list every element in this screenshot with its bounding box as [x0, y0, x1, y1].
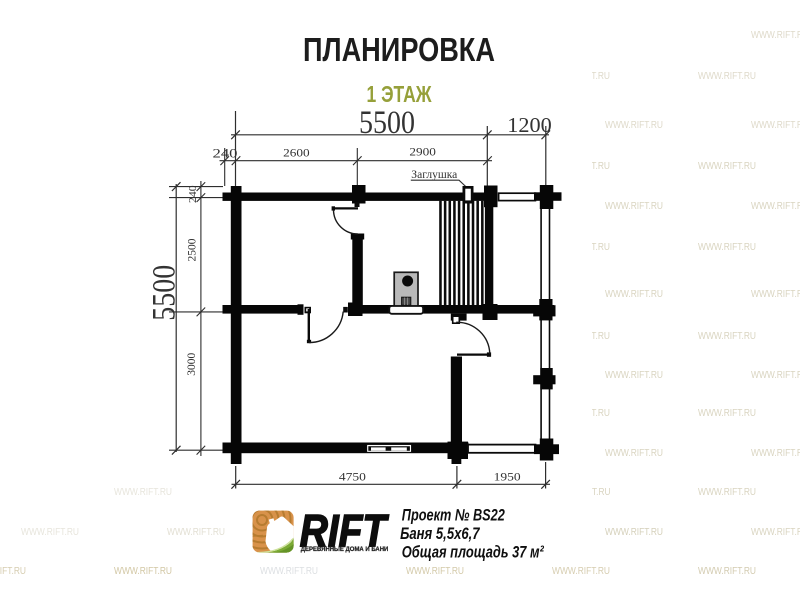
svg-text:WWW.RIFT.RU: WWW.RIFT.RU: [605, 447, 663, 459]
svg-text:1 ЭТАЖ: 1 ЭТАЖ: [367, 81, 433, 107]
svg-text:ДЕРЕВЯННЫЕ ДОМА И БАНИ: ДЕРЕВЯННЫЕ ДОМА И БАНИ: [301, 546, 389, 553]
svg-text:1200: 1200: [507, 113, 552, 137]
svg-text:WWW.RIFT.RU: WWW.RIFT.RU: [605, 369, 663, 381]
svg-text:T.RU: T.RU: [592, 486, 611, 498]
svg-text:WWW.RIFT.RU: WWW.RIFT.RU: [698, 160, 756, 172]
svg-text:2900: 2900: [409, 145, 436, 159]
svg-text:240: 240: [187, 185, 199, 203]
svg-text:WWW.RIFT.RU: WWW.RIFT.RU: [751, 288, 800, 300]
svg-text:WWW.RIFT.RU: WWW.RIFT.RU: [698, 241, 756, 253]
svg-text:WWW.RIFT.RU: WWW.RIFT.RU: [605, 288, 663, 300]
svg-text:2600: 2600: [283, 146, 310, 160]
svg-text:ПЛАНИРОВКА: ПЛАНИРОВКА: [303, 32, 495, 69]
svg-text:WWW.RIFT.RU: WWW.RIFT.RU: [114, 486, 172, 498]
svg-text:Проект № BS22: Проект № BS22: [402, 506, 505, 524]
svg-text:Общая площадь 37 м²: Общая площадь 37 м²: [402, 544, 544, 562]
svg-text:Баня 5,5х6,7: Баня 5,5х6,7: [400, 525, 480, 543]
svg-text:Заглушка: Заглушка: [411, 169, 457, 181]
svg-text:WWW.RIFT.RU: WWW.RIFT.RU: [698, 330, 756, 342]
svg-text:WWW.RIFT.RU: WWW.RIFT.RU: [751, 200, 800, 212]
svg-text:3000: 3000: [186, 353, 198, 376]
svg-text:WWW.RIFT.RU: WWW.RIFT.RU: [406, 565, 464, 577]
svg-text:1950: 1950: [494, 470, 521, 484]
svg-text:WWW.RIFT.RU: WWW.RIFT.RU: [751, 369, 800, 381]
svg-text:WWW.RIFT.RU: WWW.RIFT.RU: [260, 565, 318, 577]
svg-text:WWW.RIFT.RU: WWW.RIFT.RU: [552, 565, 610, 577]
svg-text:WWW.RIFT.RU: WWW.RIFT.RU: [605, 119, 663, 131]
svg-text:WWW.RIFT.RU: WWW.RIFT.RU: [698, 565, 756, 577]
svg-text:WWW.RIFT.RU: WWW.RIFT.RU: [698, 486, 756, 498]
svg-text:WWW.RIFT.RU: WWW.RIFT.RU: [751, 29, 800, 41]
svg-text:WWW.RIFT.RU: WWW.RIFT.RU: [0, 565, 26, 577]
svg-text:WWW.RIFT.RU: WWW.RIFT.RU: [605, 526, 663, 538]
svg-text:4750: 4750: [339, 470, 366, 484]
svg-text:WWW.RIFT.RU: WWW.RIFT.RU: [751, 526, 800, 538]
svg-text:WWW.RIFT.RU: WWW.RIFT.RU: [114, 565, 172, 577]
svg-text:WWW.RIFT.RU: WWW.RIFT.RU: [21, 526, 79, 538]
svg-text:WWW.RIFT.RU: WWW.RIFT.RU: [698, 407, 756, 419]
svg-text:WWW.RIFT.RU: WWW.RIFT.RU: [167, 526, 225, 538]
svg-text:WWW.RIFT.RU: WWW.RIFT.RU: [751, 119, 800, 131]
svg-text:WWW.RIFT.RU: WWW.RIFT.RU: [605, 200, 663, 212]
svg-text:WWW.RIFT.RU: WWW.RIFT.RU: [698, 70, 756, 82]
svg-text:2500: 2500: [187, 238, 199, 261]
svg-text:5500: 5500: [359, 105, 415, 141]
svg-text:WWW.RIFT.RU: WWW.RIFT.RU: [751, 447, 800, 459]
